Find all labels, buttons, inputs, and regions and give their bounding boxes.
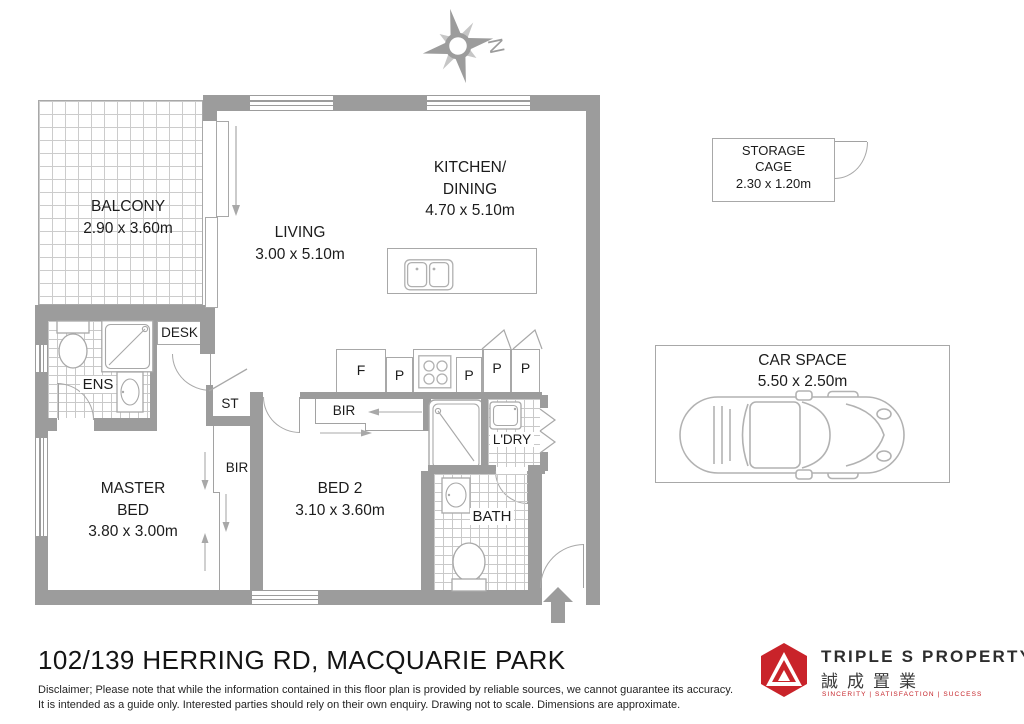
wall (421, 471, 434, 590)
robe-front-line (365, 430, 427, 431)
window (35, 438, 48, 536)
wall (203, 95, 250, 111)
disclaimer-line: Disclaimer; Please note that while the i… (38, 683, 733, 698)
storage-door-arc (835, 142, 868, 179)
room-dims: 3.00 x 5.10m (225, 244, 375, 266)
room-dims: 3.10 x 3.60m (265, 500, 415, 522)
entry-arrow-icon (543, 587, 573, 623)
living-label: LIVING 3.00 x 5.10m (225, 222, 375, 265)
wall (203, 111, 217, 121)
room-dims: 2.30 x 1.20m (712, 176, 835, 192)
robe-front-line (219, 492, 220, 590)
room-dims: 4.70 x 5.10m (390, 200, 550, 222)
pantry-label: P (386, 367, 413, 383)
bed2-label: BED 2 3.10 x 3.60m (265, 478, 415, 521)
bath-label: BATH (458, 506, 526, 527)
balcony-label: BALCONY 2.90 x 3.60m (53, 196, 203, 239)
wall (428, 465, 496, 474)
wall (35, 305, 215, 321)
disclaimer-text: Disclaimer; Please note that while the i… (38, 683, 733, 713)
robe-front-line (315, 423, 365, 424)
wall (528, 465, 545, 474)
double-sink-icon (404, 259, 454, 291)
room-dims: 2.90 x 3.60m (53, 218, 203, 240)
wall (48, 418, 57, 431)
room-name: L'DRY (490, 432, 534, 447)
fridge-label: F (336, 362, 386, 378)
desk-label: DESK (157, 325, 202, 340)
room-name: ENS (80, 376, 117, 393)
laundry-tub-icon (489, 401, 522, 430)
slide-direction-arrow (368, 408, 422, 416)
kitchen-dining-label: KITCHEN/ DINING 4.70 x 5.10m (390, 157, 550, 222)
room-name: BALCONY (53, 196, 203, 218)
shower-icon (101, 320, 154, 373)
sliding-door-panel (205, 217, 218, 308)
compass-rose-icon: N (408, 6, 508, 86)
wall (35, 536, 48, 605)
closet-door-line (206, 366, 250, 393)
car-top-view-icon (678, 390, 906, 480)
shower-icon (428, 399, 484, 473)
pantry-label: P (511, 360, 540, 376)
slide-direction-arrow (320, 429, 372, 437)
window (250, 95, 333, 111)
robe-front-line (213, 426, 214, 492)
wall (250, 392, 263, 590)
window (35, 345, 48, 372)
wall (300, 392, 542, 399)
room-name: KITCHEN/ (390, 157, 550, 179)
window (427, 95, 530, 111)
room-name: CAR SPACE (655, 351, 950, 372)
ensuite-label: ENS (70, 374, 126, 395)
door-leaf (583, 544, 584, 588)
cooktop-icon (418, 355, 452, 389)
wall (540, 395, 548, 408)
wall (586, 95, 600, 605)
room-name: BED (58, 500, 208, 522)
pantry-label: P (483, 360, 511, 376)
bifold-door-icon (539, 408, 559, 454)
wall (35, 372, 48, 438)
master-bed-label: MASTER BED 3.80 x 3.00m (58, 478, 208, 543)
wall (318, 590, 542, 605)
wall (94, 418, 157, 431)
pantry-label: P (456, 367, 482, 383)
wall (200, 321, 215, 354)
bir-label: BIR (328, 403, 360, 418)
robe-side-line (315, 399, 316, 423)
room-name: DINING (390, 179, 550, 201)
door-leaf (58, 383, 59, 420)
laundry-label: L'DRY (484, 431, 540, 450)
property-address: 102/139 HERRING RD, MACQUARIE PARK (38, 645, 565, 676)
door-leaf (835, 141, 867, 142)
room-name: BED 2 (265, 478, 415, 500)
room-name: LIVING (225, 222, 375, 244)
toilet-icon (56, 320, 90, 370)
wall (528, 474, 542, 590)
disclaimer-line: It is intended as a guide only. Interest… (38, 698, 733, 713)
sliding-door-panel (216, 121, 229, 217)
door-leaf (299, 397, 300, 433)
floor-plan-page: N BALCONY 2.90 x 3.60m LIVING 3.00 x 5.1… (0, 0, 1024, 724)
storage-cage-label: STORAGE CAGE 2.30 x 1.20m (712, 143, 835, 192)
room-name: BATH (470, 508, 515, 525)
agency-tagline: SINCERITY | SATISFACTION | SUCCESS (822, 691, 982, 698)
bed2-door-arc (263, 397, 300, 433)
slide-direction-arrow (222, 494, 230, 532)
window (252, 590, 318, 605)
wall (35, 590, 252, 605)
room-name: CAGE (712, 159, 835, 175)
cabinet-door-flaps (481, 327, 543, 350)
car-space-label: CAR SPACE 5.50 x 2.50m (655, 351, 950, 393)
slide-direction-arrow (231, 126, 241, 216)
toilet-icon (450, 542, 488, 592)
agency-name: TRIPLE S PROPERTY (821, 647, 1024, 667)
wall (35, 321, 48, 345)
wall (333, 95, 427, 111)
room-name: STORAGE (712, 143, 835, 159)
room-dims: 3.80 x 3.00m (58, 521, 208, 543)
room-name: MASTER (58, 478, 208, 500)
entry-door-arc (540, 544, 584, 588)
agency-chinese-name: 誠成置業 (821, 667, 925, 692)
agency-logo-icon (757, 641, 811, 699)
bir-label: BIR (222, 460, 252, 475)
st-label: ST (213, 396, 247, 411)
